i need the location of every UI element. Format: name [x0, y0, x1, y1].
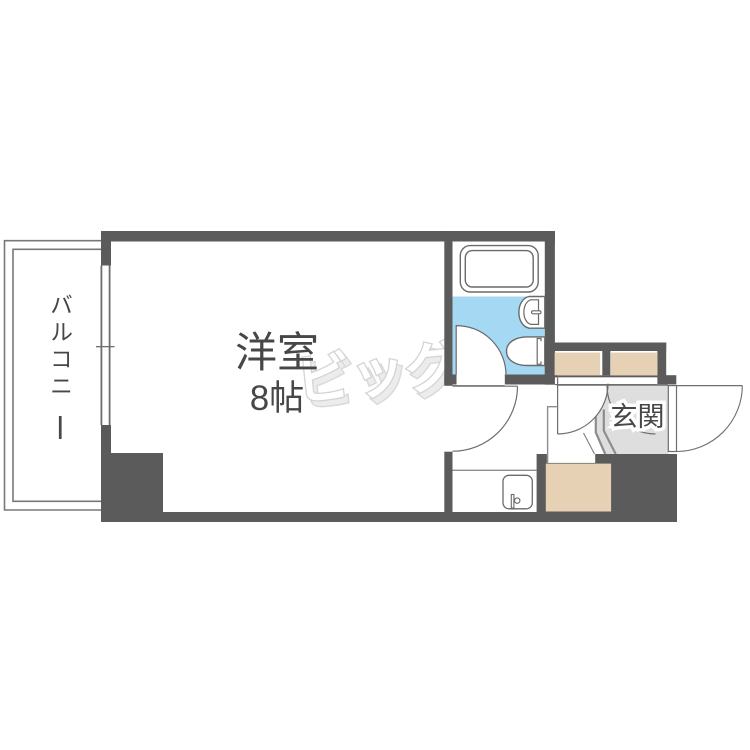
svg-text:8帖: 8帖	[250, 379, 304, 418]
svg-text:玄関: 玄関	[611, 402, 665, 432]
svg-text:洋室: 洋室	[235, 329, 319, 376]
svg-text:バルコニ: バルコニ	[47, 293, 73, 401]
